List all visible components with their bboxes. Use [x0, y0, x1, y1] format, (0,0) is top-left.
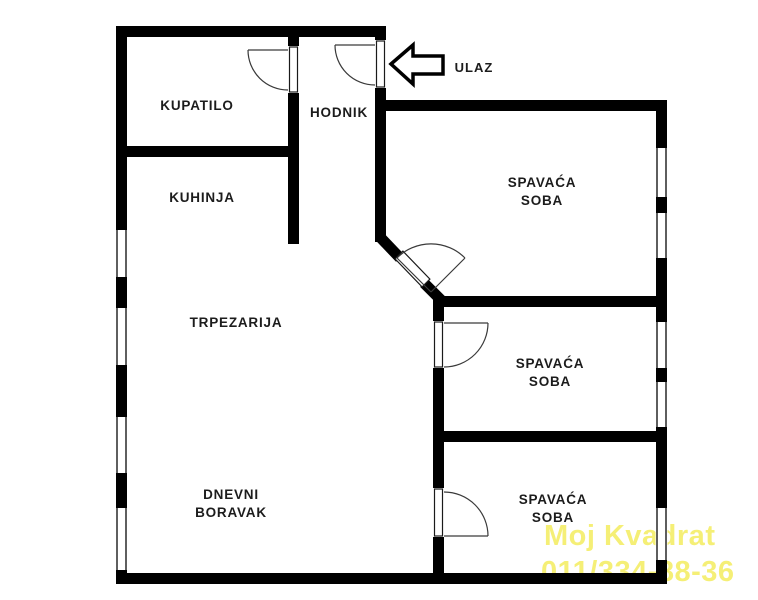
window-icon [656, 148, 668, 197]
wall-bedroom-top [386, 100, 667, 111]
wall-bedroom2-3-divider [433, 431, 667, 442]
window-icon [116, 230, 128, 277]
window-icon [116, 417, 128, 473]
room-label-dnevni-line1: DNEVNI [203, 487, 259, 502]
window-icon [656, 382, 668, 427]
room-label-spavaca2-line2: SOBA [529, 374, 571, 389]
wall-bedroom1-2-divider [433, 296, 667, 307]
floor-plan-drawing: Moj Kvadrat 011/334-88-36 [0, 0, 758, 600]
window-icon [656, 508, 668, 560]
room-label-hodnik: HODNIK [310, 105, 368, 120]
window-icon [656, 322, 668, 368]
room-label-dnevni-line2: BORAVAK [195, 505, 267, 520]
window-icon [116, 308, 128, 365]
window-icon [656, 213, 668, 258]
room-label-kuhinja: KUHINJA [169, 190, 235, 205]
room-label-spavaca2-line1: SPAVAĆA [516, 356, 585, 371]
entrance-label: ULAZ [455, 60, 494, 75]
wall-top [116, 26, 386, 37]
room-label-spavaca3-line2: SOBA [532, 510, 574, 525]
window-icon [116, 508, 128, 570]
room-label-spavaca1-line1: SPAVAĆA [508, 175, 577, 190]
room-label-spavaca3-line1: SPAVAĆA [519, 492, 588, 507]
wall-left [116, 26, 127, 584]
room-label-spavaca1-line2: SOBA [521, 193, 563, 208]
room-label-trpezarija: TRPEZARIJA [190, 315, 283, 330]
wall-kupatilo-bottom [116, 146, 299, 157]
room-label-kupatilo: KUPATILO [160, 98, 233, 113]
wall-bottom [116, 573, 667, 584]
floor-plan-canvas: Moj Kvadrat 011/334-88-36 [0, 0, 758, 600]
